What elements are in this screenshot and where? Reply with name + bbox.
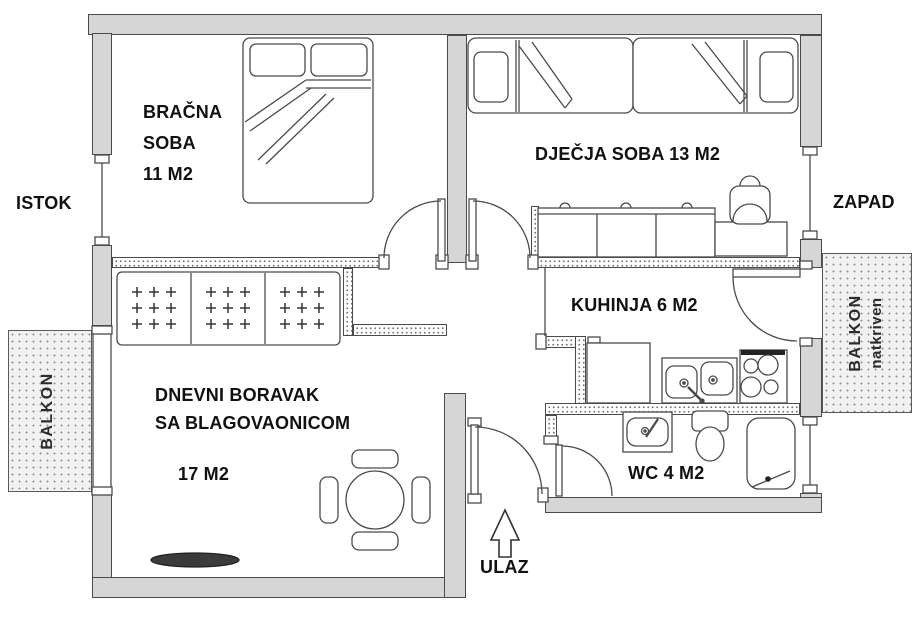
master-bedroom-name-2: SOBA: [143, 128, 222, 159]
kitchen-label: KUHINJA 6 M2: [571, 295, 698, 316]
entrance-arrow-icon: [491, 510, 519, 557]
desk: [715, 222, 787, 256]
single-bed-right: [633, 38, 798, 113]
kids-room-label: DJEČJA SOBA 13 M2: [535, 144, 720, 165]
stove: [740, 350, 787, 403]
compass-west-label: ZAPAD: [833, 192, 895, 213]
master-bedroom-name-1: BRAČNA: [143, 97, 222, 128]
desk-chair: [730, 176, 770, 224]
living-room-name-1: DNEVNI BORAVAK: [155, 381, 350, 409]
entrance-label: ULAZ: [480, 557, 529, 578]
balcony-slider-living: [92, 326, 112, 495]
wardrobe: [538, 203, 715, 257]
wc-sink: [623, 412, 672, 452]
window-kids-room: [803, 147, 817, 239]
wc-label: WC 4 M2: [628, 463, 704, 484]
living-room-label: DNEVNI BORAVAK SA BLAGOVAONICOM: [155, 381, 350, 437]
living-room-name-2: SA BLAGOVAONICOM: [155, 409, 350, 437]
door-kids-room: [469, 199, 530, 261]
door-wc: [556, 445, 612, 496]
floor-plan: ISTOK ZAPAD BRAČNA SOBA 11 M2 DJEČJA SOB…: [0, 0, 920, 619]
window-master-bedroom: [95, 155, 109, 245]
window-wc: [803, 417, 817, 493]
door-entrance: [471, 425, 542, 494]
master-bedroom-area: 11 M2: [143, 159, 222, 190]
compass-east-label: ISTOK: [16, 193, 72, 214]
tv: [151, 553, 239, 567]
toilet: [692, 411, 728, 461]
kitchen-sink: [662, 358, 737, 403]
master-bedroom-label: BRAČNA SOBA 11 M2: [143, 97, 222, 190]
double-bed: [243, 38, 373, 203]
living-room-area: 17 M2: [178, 464, 229, 485]
door-kitchen-balcony: [733, 269, 800, 341]
fridge: [587, 337, 650, 403]
single-bed-left: [468, 38, 633, 113]
dining-set: [320, 450, 430, 550]
shower: [747, 418, 795, 489]
plan-drawing-layer: [0, 0, 920, 619]
sofa: [117, 272, 340, 345]
door-master-bedroom: [384, 199, 445, 261]
